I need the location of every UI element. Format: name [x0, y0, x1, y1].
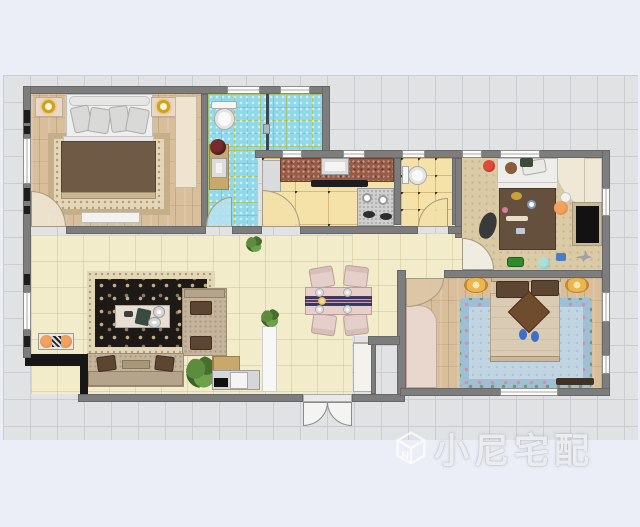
living-plant-small [246, 236, 263, 252]
dining-chair [311, 312, 338, 336]
cube-n-logo-icon: N [394, 426, 428, 470]
master-pillow-right [531, 280, 559, 296]
curtain-mark [24, 274, 30, 285]
window [282, 150, 302, 158]
floor-plan-screen: N 小尼宅配 [0, 0, 640, 527]
coffee-table-remote [124, 311, 133, 317]
wall-segment [397, 270, 406, 396]
window [23, 138, 31, 184]
master-bedside-mat-left [464, 277, 488, 293]
sofa-right-armrest [184, 289, 225, 298]
master-bed-foot-trim [490, 356, 560, 362]
stove-burner-dark [380, 213, 392, 220]
curtain-mark [24, 206, 30, 214]
kitchen-fridge [262, 160, 281, 192]
window [500, 388, 558, 396]
wall-step-shadow-v [80, 354, 88, 398]
kids-ball-teal [538, 257, 550, 269]
bedroom1-lamp-right [157, 100, 170, 113]
watermark-text: 小尼宅配 [434, 423, 594, 474]
window [227, 86, 260, 94]
wall-segment [371, 344, 376, 394]
kids-toy-dark [520, 158, 533, 167]
kids-ball-orange [554, 201, 568, 215]
window [602, 188, 610, 216]
curtain-mark [24, 126, 30, 134]
curtain-mark [24, 110, 30, 123]
cabinet-white-box [230, 372, 248, 389]
bathroom1-toilet-bowl [214, 108, 235, 130]
wall-segment [444, 270, 602, 278]
dining-plate [315, 305, 324, 314]
dining-plate [315, 288, 324, 297]
stove-burner [362, 193, 372, 203]
sofa-cushion [154, 355, 175, 372]
stove-burner-dark [363, 211, 375, 218]
wall-segment [78, 394, 303, 402]
kids-toy-bone [506, 216, 528, 221]
wall-step-shadow-h [25, 354, 84, 366]
kitchen-range-hood [311, 180, 368, 187]
kids-toy-ball [527, 200, 536, 209]
sofa-bottom-back [88, 371, 183, 386]
kids-desk-top [576, 206, 599, 243]
dining-plate [343, 288, 352, 297]
master-bedside-mat-right [565, 277, 589, 293]
kids-toy-car [507, 257, 524, 267]
kids-toy-blue [556, 253, 566, 261]
dining-table-runner [305, 296, 372, 306]
kids-toy-pink [502, 207, 508, 213]
tv-screen [214, 378, 228, 387]
curtain-mark [24, 336, 30, 347]
wall-segment [255, 150, 610, 158]
side-cabinet [212, 356, 240, 371]
dining-plate [343, 305, 352, 314]
column-plant [261, 309, 280, 327]
kids-toy-paper [516, 228, 525, 234]
window [500, 150, 540, 158]
master-wardrobe [406, 305, 437, 388]
window [23, 292, 31, 330]
sofa-tray [122, 360, 150, 369]
window [402, 150, 425, 158]
window [462, 150, 482, 158]
window [343, 150, 365, 158]
bathroom1-plant [210, 139, 226, 155]
wall-segment [201, 94, 208, 227]
hall-column-cabinet [262, 326, 277, 392]
bedroom1-bolster-pillow [69, 96, 150, 106]
dining-centerpiece [318, 297, 326, 305]
shower-door-handle [263, 124, 270, 134]
sofa-cushion [96, 355, 117, 372]
entry-threshold [303, 394, 352, 402]
wall-segment [322, 86, 330, 158]
wall-segment [300, 226, 418, 234]
window [280, 86, 310, 94]
window [602, 355, 610, 374]
wall-segment [394, 158, 401, 225]
kids-toy-gold [511, 192, 522, 200]
master-slipper [531, 331, 539, 342]
wall-segment [66, 226, 206, 234]
bathroom1-sink [211, 158, 227, 178]
sofa-cushion [190, 301, 212, 315]
bedroom1-bench [81, 212, 140, 223]
dining-chair [343, 313, 369, 337]
wall-segment [232, 226, 262, 234]
kids-wardrobe [584, 158, 602, 204]
bedroom1-wardrobe [175, 95, 197, 188]
wall-segment [352, 394, 405, 402]
curtain-mark [24, 188, 30, 201]
window [602, 292, 610, 322]
bedroom1-duvet [61, 141, 156, 198]
watermark: N 小尼宅配 [394, 423, 594, 473]
kitchen-sink [321, 158, 349, 175]
wall-segment [448, 226, 462, 234]
master-slipper [519, 329, 527, 340]
dining-chair [343, 265, 369, 289]
bedroom1-duvet-trim [61, 192, 156, 199]
kids-teddy-bear [505, 162, 517, 174]
sofa-cushion [190, 336, 212, 350]
master-foot-bench [556, 378, 594, 385]
bathroom2-toilet-bowl [408, 166, 427, 185]
svg-text:N: N [401, 450, 409, 462]
bench-center-pattern [52, 336, 61, 347]
bedroom1-lamp-left [42, 100, 55, 113]
entry-shoe-cabinet [353, 342, 372, 392]
stove-burner [378, 195, 388, 205]
kids-red-stool [483, 160, 495, 172]
coffee-table-plate [148, 317, 161, 328]
